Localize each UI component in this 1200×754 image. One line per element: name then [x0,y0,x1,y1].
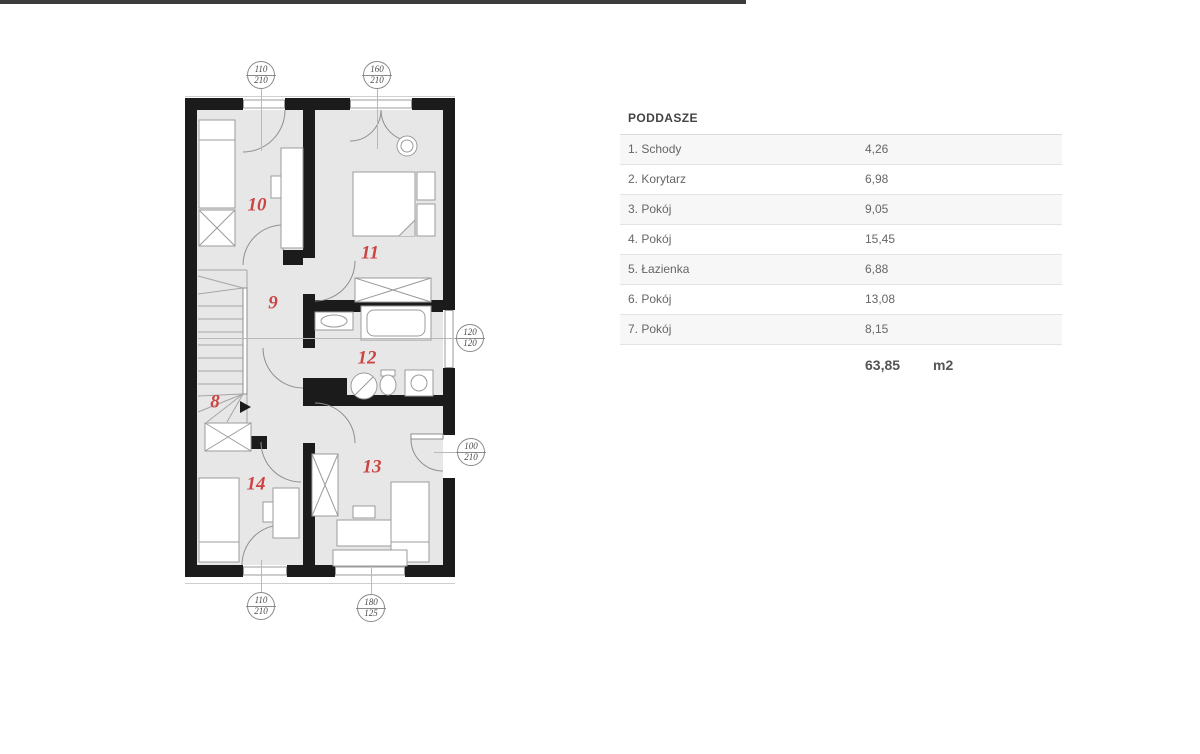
room-area-value: 9,05 [865,195,888,224]
leader-line [261,89,262,151]
table-row: 6. Pokój 13,08 [620,285,1062,315]
room-label: 6. Pokój [620,292,671,306]
room-number-8: 8 [210,393,220,412]
room-area-value: 13,08 [865,285,895,314]
desk-icon [337,520,393,546]
room-area-value: 15,45 [865,225,895,254]
area-table-title: PODDASZE [620,108,1062,135]
room-area-value: 4,26 [865,135,888,164]
room-number-10: 10 [248,196,267,215]
area-table-rows: 1. Schody 4,26 2. Korytarz 6,98 3. Pokój… [620,135,1062,345]
room-label: 7. Pokój [620,322,671,336]
table-row: 4. Pokój 15,45 [620,225,1062,255]
room-number-12: 12 [358,349,377,368]
nightstand-icon [417,172,435,200]
desk-icon [281,148,303,248]
dimension-marker: 120120 [456,324,484,352]
room-label: 2. Korytarz [620,172,686,186]
laptop-icon [353,506,375,518]
chair-icon [263,502,273,522]
roof-line-top [185,96,455,97]
room-number-14: 14 [247,475,266,494]
dimension-marker: 100210 [457,438,485,466]
chair-icon [271,176,281,198]
nightstand-icon [417,204,435,236]
window-seat [333,550,407,566]
desk-icon [273,488,299,538]
room-label: 1. Schody [620,142,681,156]
total-area-unit: m2 [933,345,953,385]
total-area-value: 63,85 [865,345,900,385]
dimension-marker: 110210 [247,61,275,89]
leader-line [371,565,372,594]
table-row: 2. Korytarz 6,98 [620,165,1062,195]
leader-line [198,338,456,339]
room-number-11: 11 [361,244,379,263]
room-label: 4. Pokój [620,232,671,246]
table-row: 1. Schody 4,26 [620,135,1062,165]
room-label: 3. Pokój [620,202,671,216]
dimension-marker: 160210 [363,61,391,89]
table-row: 3. Pokój 9,05 [620,195,1062,225]
table-row: 7. Pokój 8,15 [620,315,1062,345]
area-table: PODDASZE 1. Schody 4,26 2. Korytarz 6,98… [620,108,1062,385]
leader-line [434,452,457,453]
double-bed-icon [353,172,415,236]
leader-line [377,89,378,149]
dimension-marker: 180125 [357,594,385,622]
room-number-9: 9 [268,294,278,313]
room-area-value: 8,15 [865,315,888,344]
page: { "top_bar": { "color": "#3b3b3b" }, "co… [0,0,1200,754]
roof-line-bottom [185,583,455,584]
top-bar [0,0,746,4]
room-area-value: 6,98 [865,165,888,194]
room-area-value: 6,88 [865,255,888,284]
dimension-marker: 110210 [247,592,275,620]
room-label: 5. Łazienka [620,262,689,276]
room-number-13: 13 [363,458,382,477]
table-row: 5. Łazienka 6,88 [620,255,1062,285]
total-area-row: 63,85 m2 [620,345,1062,385]
leader-line [261,560,262,592]
